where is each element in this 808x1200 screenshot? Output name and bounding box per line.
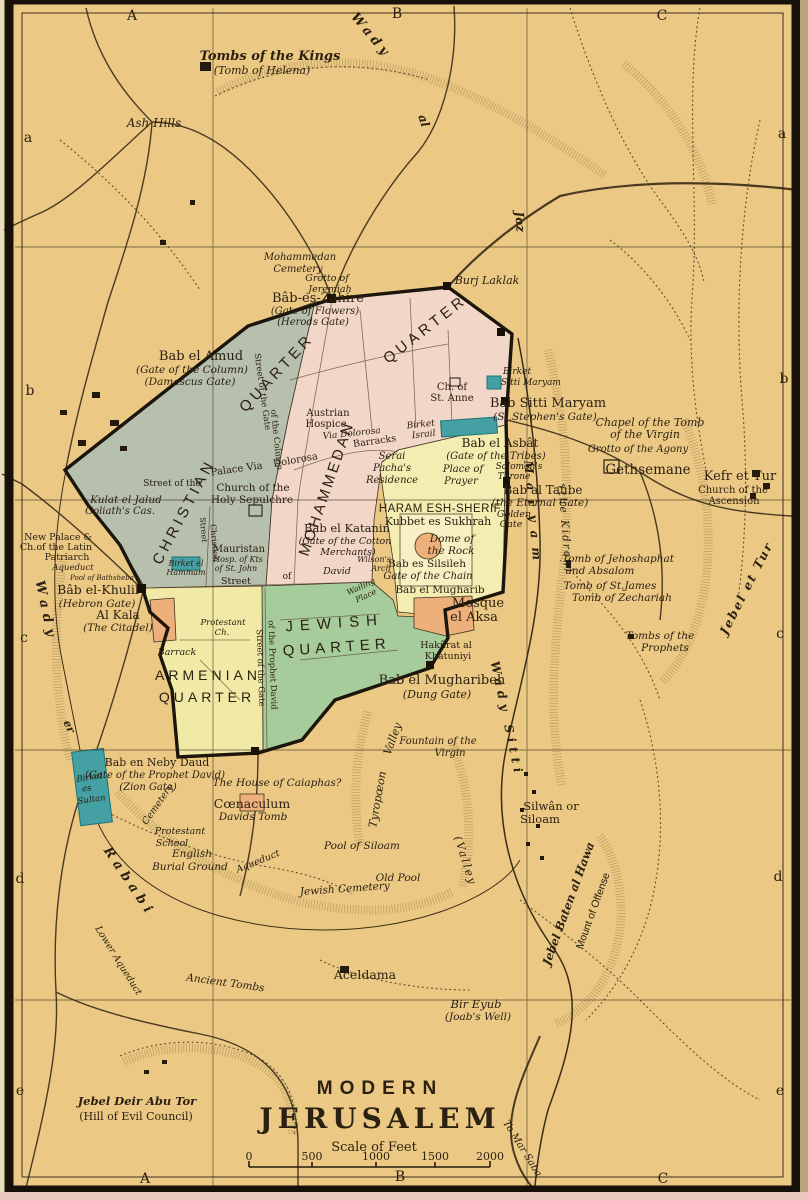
map-label: Pool of Siloam [323,840,400,852]
map-label: Ascension [707,496,760,507]
map-label: Bab Sitti Maryam [490,396,606,411]
quarter-label: QUARTER [159,689,255,705]
map-label: Bab el Amud [159,349,243,364]
map-label: Khatuniyi [425,651,471,662]
grid-letter: c [20,630,28,646]
map-label: Sitti Maryam [501,378,561,388]
map-label: Church of the [216,482,289,494]
map-label: Bab el Asbât [462,436,539,450]
quarter-label: ARMENIAN [155,667,261,683]
map-label: Holy Sepulchre [211,494,293,506]
map-label: Kulat el Jalud [89,494,162,506]
map-label: Hospice [306,419,347,430]
map-label: Fountain of the [398,736,476,747]
map-label: Pool of Bathsheba [69,574,134,582]
map-label: Davids Tomb [218,811,288,823]
map-label: Bir Eyub [450,997,502,1011]
map-label: Protestant [154,826,206,837]
map-label: Burial Ground [151,861,228,873]
map-label: (St.Stephen's Gate) [493,411,597,423]
map-label: (Herods Gate) [277,317,349,328]
map-label: Mosque [452,596,505,611]
map-title-kicker: MODERN [317,1078,443,1099]
map-label: Barrack [157,647,197,658]
map-label: Bab es Silsileh [388,558,466,570]
map-label: Virgin [434,748,465,759]
map-label: Church of the [698,485,768,496]
map-label: (Damascus Gate) [145,376,236,388]
map-label: David [322,566,351,577]
map-label: Hammam [165,568,206,577]
grid-letter: A [126,8,138,24]
scale-tick: 2000 [476,1150,504,1163]
map-label: (The Citadel) [83,622,153,634]
map-label: (Gate of Flowers) [271,306,359,317]
map-label: Bab el Mugharib [395,584,485,596]
map-label: Aceldama [333,967,397,982]
map-label: Tombs of the [626,630,695,642]
map-label: Place of [442,464,486,475]
zion-gate-icon [251,747,259,755]
map-label: (Tomb of Helena) [214,64,311,77]
map-label: Kefr et Tur [704,469,777,484]
grid-letter: C [657,8,668,24]
map-label: Tomb of St.James [564,580,657,592]
map-label: Serai [379,451,406,462]
grid-letter: a [24,130,32,146]
map-label: Gate [500,519,523,530]
map-label: Tomb of Zechariah [572,592,672,604]
map-label: Bâb el-Khulil [57,582,139,597]
grid-letter: d [774,869,783,885]
map-label: Gethsemane [605,462,690,478]
map-label: Patriarch [45,552,90,563]
map-label: Prophets [640,642,689,654]
grid-letter: b [780,371,789,387]
map-label: Austrian [305,408,350,419]
burj-laklak-tower-icon [497,328,505,336]
map-label: Ch. of [437,382,468,393]
map-label: Silwân or [523,799,579,813]
map-label: HARAM ESH-SHERIF [379,503,501,515]
map-label: Street [221,576,251,587]
map-label: Goliath's Cas. [85,506,155,517]
map-label: Birket el [168,559,204,568]
map-label: Bab en Neby Daud [105,756,210,769]
map-label: and Absalom [566,565,635,577]
jerusalem-map: ABCABCabcdeabcdeTombs of the Kings(Tomb … [0,0,808,1200]
map-label: Bab el Mugharibeh [379,673,506,688]
page-edge-shadow [800,0,808,1200]
map-label: Arch [370,564,390,573]
map-label: Cœnaculum [214,796,291,811]
map-label: Grotto of the Agony [588,444,689,455]
map-label: Prayer [443,476,479,487]
scale-tick: 500 [302,1150,323,1163]
map-label: Al Kala [95,608,139,622]
map-label: Burj Laklak [454,274,520,287]
grid-letter: C [658,1171,669,1187]
map-label: of [283,572,292,582]
scale-tick: 1500 [421,1150,449,1163]
map-label: Birket [502,367,532,377]
map-label: (Hill of Evil Council) [79,1110,193,1123]
map-label: Bab el Katanin [304,521,390,535]
scale-tick: 1000 [362,1150,390,1163]
map-label: Bab al Taûbe [503,483,582,497]
grid-letter: d [16,871,25,887]
map-label: English [171,848,212,860]
map-label: Aqueduct [51,563,94,573]
grid-letter: A [139,1171,151,1187]
map-label: Dome of [429,533,477,545]
map-label: el Aksa [450,610,498,625]
map-label: Gate of the Chain [383,571,472,582]
map-label: Joz [512,209,528,234]
map-label: Protestant [199,618,246,628]
map-label: The House of Caiaphas? [213,777,342,789]
bottom-paper-strip [0,1192,808,1200]
map-label: Grotto of [305,273,350,284]
map-label: (Dung Gate) [403,688,471,701]
citadel-al-kala [150,598,176,642]
grid-letter: B [392,6,402,22]
scale-tick: 0 [246,1150,253,1163]
map-label: Mohammedan [263,252,336,263]
map-label: Tomb of Jehoshaphat [562,553,675,565]
dung-gate-icon [426,661,434,669]
herods-gate-icon [443,282,451,290]
map-label: Street of the [143,479,201,489]
map-label: of St. John [215,564,257,573]
grid-letter: b [26,383,35,399]
grid-letter: a [778,126,786,142]
map-label: St. Anne [430,393,473,404]
map-label: Kubbet es Sukhrah [385,515,492,528]
map-label: of the Virgin [610,428,680,441]
map-label: (Gate of the Cotton [299,536,392,547]
grid-letter: e [16,1083,24,1099]
map-label: Pacha's [372,463,411,474]
map-label: Residence [365,475,418,486]
map-label: Ch. [215,628,230,638]
map-label: Bâb-es-Zahire [272,291,364,306]
map-label: Jebel Deir Abu Tor [76,1094,197,1108]
map-label: Siloam [520,812,560,826]
map-title: JERUSALEM [256,1102,500,1135]
map-label: (Gate of the Column) [136,364,248,376]
map-label: Hakûrat al [420,640,472,651]
pool-birket-israil [441,417,498,437]
map-label: Wilson's [357,555,391,564]
map-label: Tombs of the Kings [200,49,341,64]
pool-birket-sitti-maryam [487,376,501,389]
map-label: (Gate of the Prophet David) [85,770,225,781]
map-page: ABCABCabcdeabcdeTombs of the Kings(Tomb … [0,0,808,1200]
map-label: Ash Hills [126,116,182,130]
map-label: the Rock [427,545,474,557]
map-label: (Joab's Well) [445,1011,511,1023]
